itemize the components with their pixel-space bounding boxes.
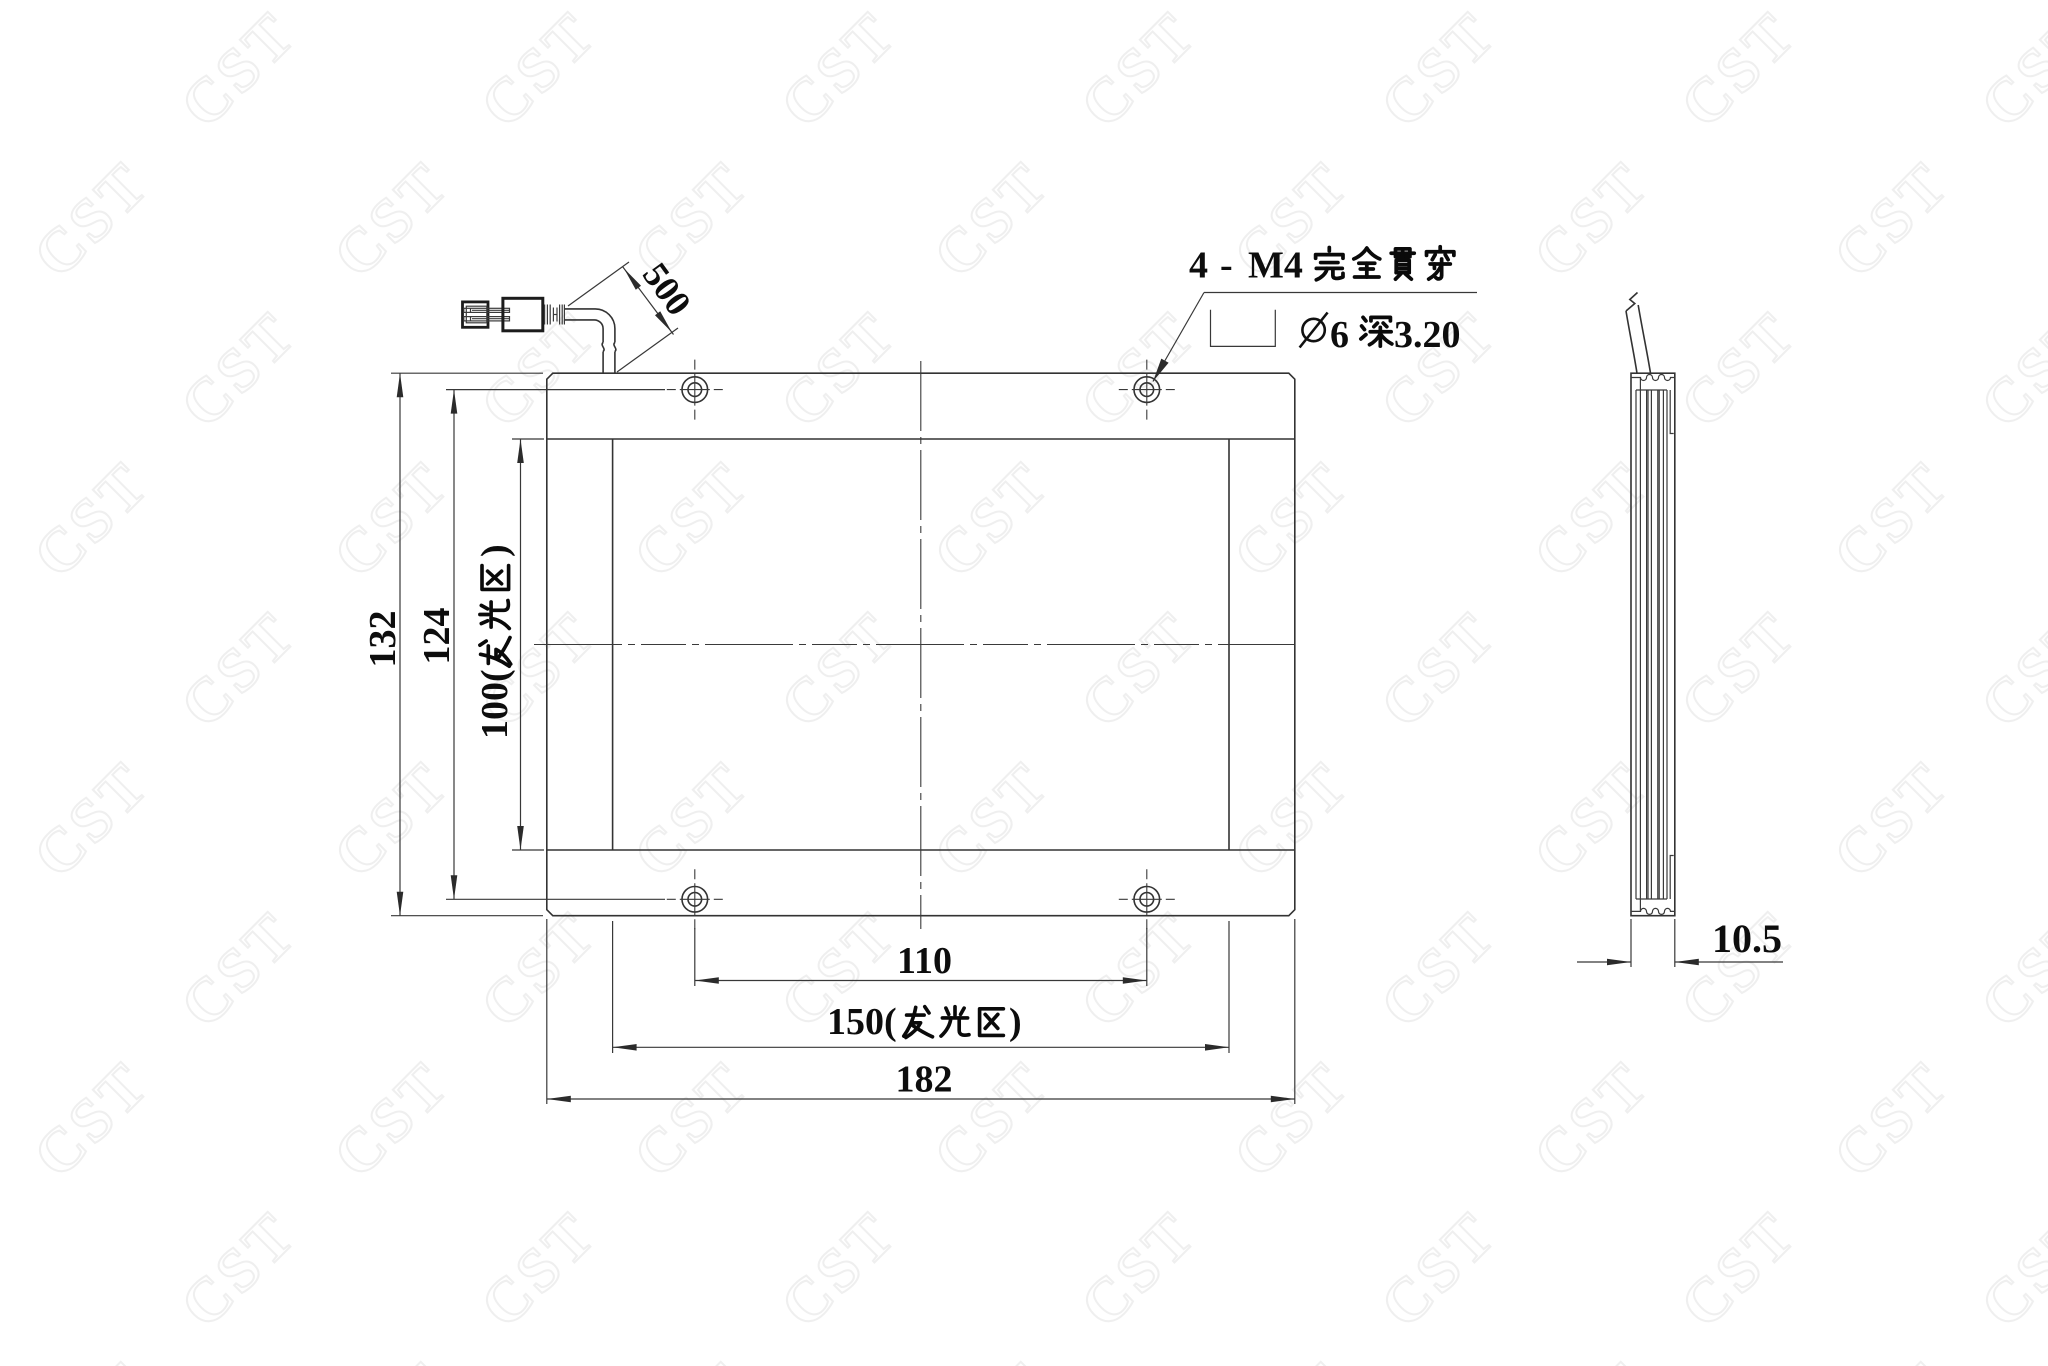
svg-text:124: 124 (416, 608, 458, 665)
svg-text:3.20: 3.20 (1394, 314, 1461, 356)
svg-text:): ) (474, 544, 516, 557)
svg-text:): ) (1009, 1001, 1022, 1043)
svg-text:-: - (1220, 245, 1233, 287)
svg-text:150(: 150( (827, 1001, 897, 1043)
svg-text:M4: M4 (1248, 245, 1303, 287)
svg-text:100(: 100( (474, 669, 516, 739)
svg-text:132: 132 (362, 611, 404, 668)
svg-text:182: 182 (896, 1059, 953, 1101)
svg-text:6: 6 (1330, 314, 1349, 356)
svg-text:4: 4 (1189, 245, 1208, 287)
svg-text:10.5: 10.5 (1712, 916, 1782, 961)
svg-text:110: 110 (897, 940, 952, 982)
